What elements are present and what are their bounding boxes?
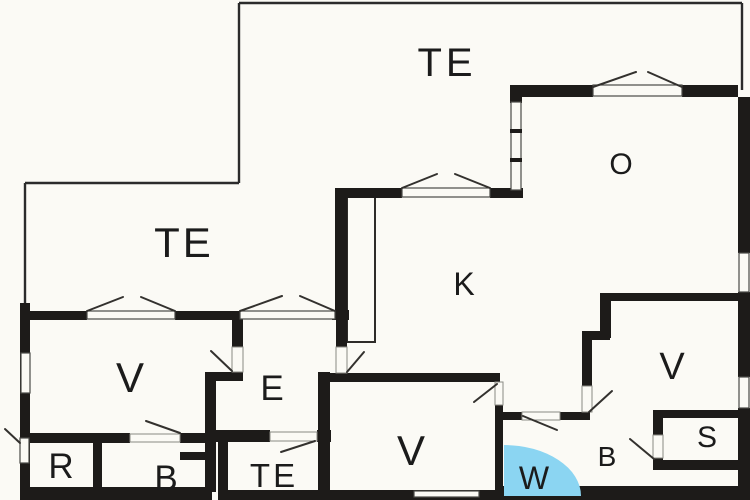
wall-segment — [28, 311, 87, 320]
wall-segment — [336, 320, 347, 347]
window-mullion — [510, 158, 522, 162]
wall-segment — [318, 372, 330, 500]
wall-segment — [582, 340, 592, 386]
wall-segment — [20, 303, 30, 500]
window — [414, 491, 479, 497]
room-label-e: E — [260, 369, 283, 408]
wall-segment — [180, 452, 205, 460]
wall-segment — [495, 405, 503, 500]
door-opening — [130, 434, 180, 442]
wall-segment — [738, 408, 750, 486]
door-sill — [240, 311, 335, 319]
wall-segment — [93, 443, 102, 488]
wall-segment — [218, 433, 228, 498]
floor-plan: TE TE O K V V V E R B TE W B S — [0, 0, 750, 500]
window — [739, 377, 749, 408]
wall-segment — [175, 311, 240, 320]
room-label-v-bottom: V — [397, 427, 425, 474]
door-sill — [402, 188, 490, 197]
wall-segment — [503, 412, 522, 420]
wall-segment — [20, 487, 212, 500]
wall-segment — [335, 188, 347, 320]
room-label-r: R — [48, 447, 73, 486]
floor-plan-drawing: TE TE O K V V V E R B TE W B S — [0, 0, 750, 500]
door-opening — [582, 386, 592, 412]
door-opening — [270, 432, 317, 441]
wall-segment — [738, 97, 750, 253]
wall-segment — [322, 373, 500, 382]
wall-segment — [653, 460, 750, 470]
wall-segment — [738, 292, 750, 377]
wall-segment — [682, 85, 738, 97]
door-opening — [653, 435, 663, 458]
wall-segment — [180, 433, 216, 443]
room-label-terrace-left: TE — [154, 219, 214, 266]
wall-segment — [582, 331, 610, 340]
wall-segment — [602, 293, 750, 301]
door-sill — [20, 438, 29, 463]
room-label-o: O — [609, 148, 632, 181]
wall-segment — [205, 372, 243, 381]
room-label-b-left: B — [154, 459, 177, 498]
room-label-v-left: V — [116, 354, 144, 401]
door-opening — [232, 347, 243, 372]
wall-segment — [510, 85, 593, 97]
wall-segment — [560, 412, 590, 420]
window — [21, 353, 30, 393]
wall-segment — [228, 433, 270, 442]
wall-segment — [28, 433, 130, 443]
room-label-s: S — [697, 421, 717, 454]
chimney-flue — [347, 197, 375, 342]
door-sill — [593, 85, 682, 96]
room-label-k: K — [453, 266, 474, 302]
room-label-w: W — [519, 460, 550, 496]
room-label-terrace-top: TE — [417, 41, 476, 85]
window — [511, 102, 521, 190]
door-sill — [87, 311, 175, 319]
room-label-v-right: V — [659, 346, 685, 388]
room-label-b-right: B — [598, 441, 617, 472]
room-label-terrace-bottom: TE — [250, 457, 298, 494]
wall-segment — [653, 410, 738, 418]
door-opening — [336, 347, 347, 373]
wall-segment — [653, 410, 663, 435]
window — [739, 253, 749, 292]
window-mullion — [510, 129, 522, 133]
